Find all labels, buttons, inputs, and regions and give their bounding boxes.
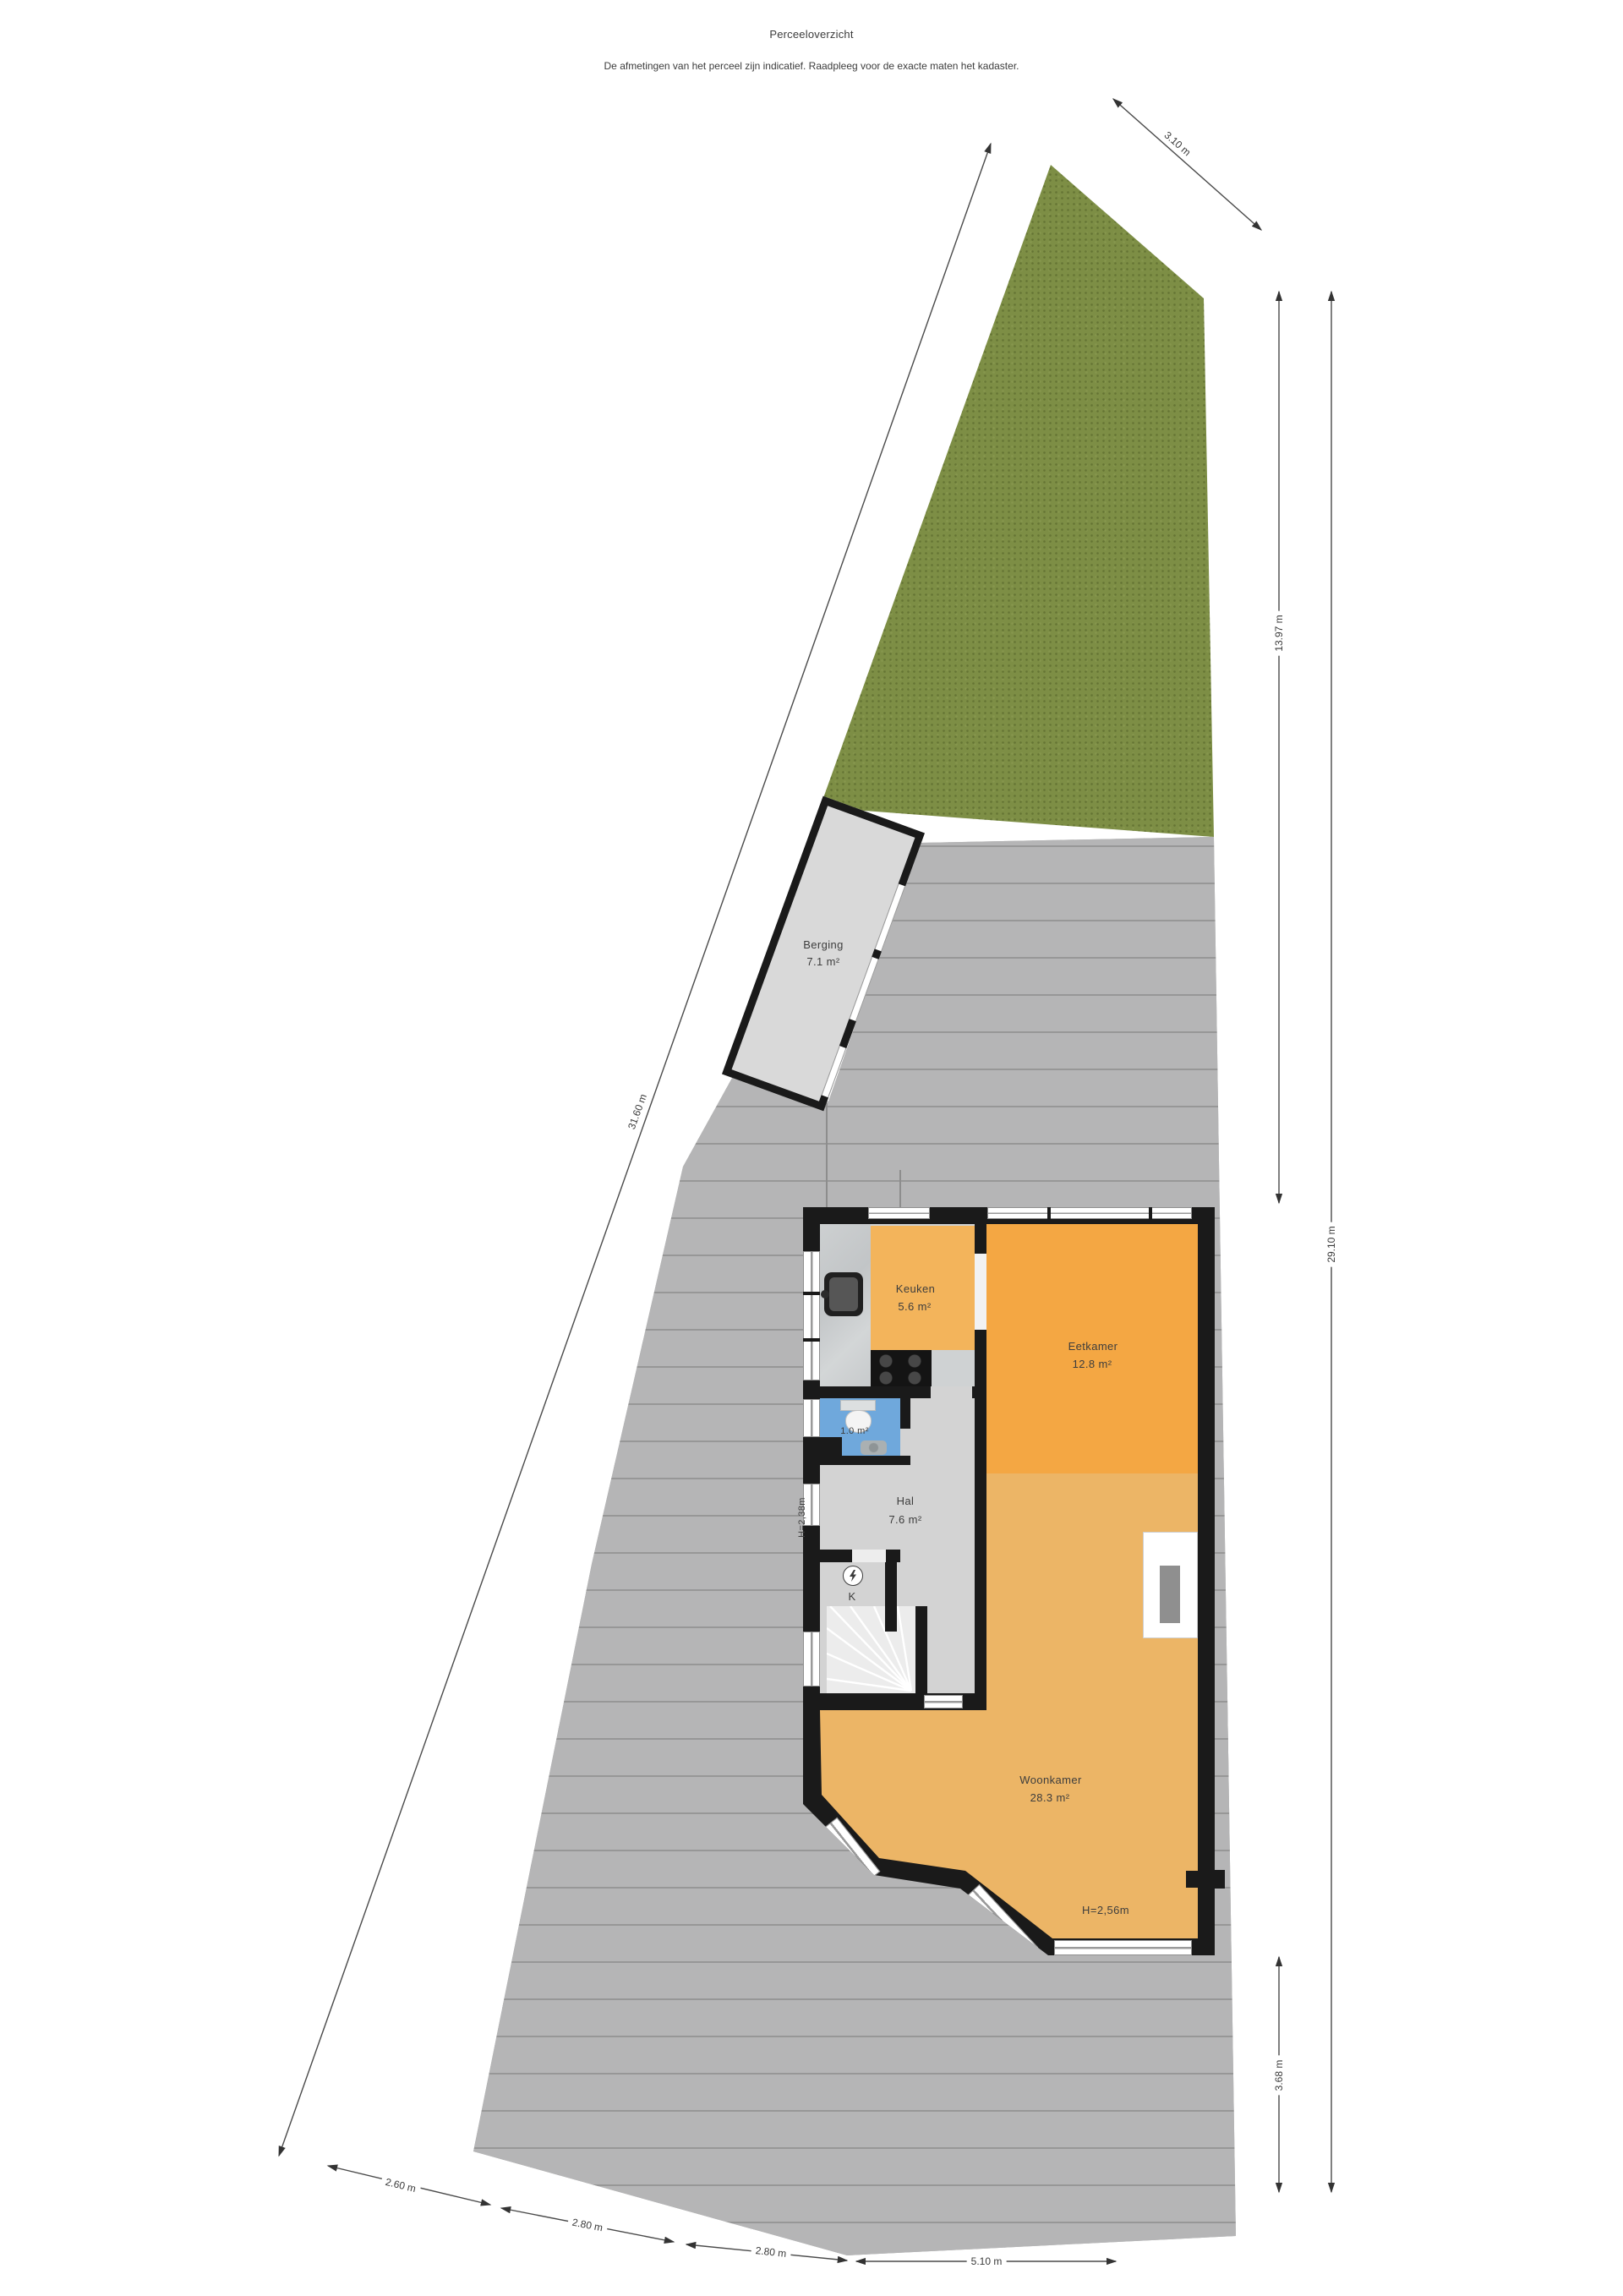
stairs-treads-icon — [827, 1606, 915, 1693]
wall-stub-eetkamer-woonkamer — [975, 1473, 986, 1522]
door-keuken-hal — [931, 1386, 972, 1398]
wall-meterkast-side — [885, 1562, 897, 1632]
meterkast-label: K — [848, 1588, 855, 1605]
woonkamer-label: Woonkamer — [1019, 1772, 1081, 1789]
berging-area: 7.1 m² — [806, 954, 839, 970]
window-keuken-top — [868, 1207, 930, 1219]
wall-toilet-bottom — [820, 1456, 910, 1465]
page-subtitle: De afmetingen van het perceel zijn indic… — [0, 60, 1623, 72]
kitchen-sink-icon — [824, 1272, 863, 1316]
staircase — [827, 1606, 915, 1693]
door-keuken-eetkamer — [975, 1254, 986, 1330]
stair-landing — [927, 1606, 975, 1693]
house-floorplan — [803, 1207, 1215, 1955]
dim-line-top — [1113, 99, 1261, 230]
dim-label-bottom-2: 2.80 m — [567, 2216, 609, 2235]
door-meterkast — [852, 1550, 886, 1562]
window-toilet — [803, 1399, 820, 1437]
paved-driveway-area — [0, 0, 1623, 2296]
page-title: Perceeloverzicht — [0, 28, 1623, 41]
terrace-divider-line — [899, 1170, 901, 1207]
dim-label-bottom-4: 5.10 m — [967, 2255, 1007, 2267]
hal-label: Hal — [897, 1493, 915, 1510]
dim-label-bottom-1: 2.60 m — [380, 2175, 422, 2196]
eetkamer-label: Eetkamer — [1068, 1338, 1118, 1355]
window-woonkamer-bottom — [1054, 1940, 1192, 1955]
dim-label-bottom-3: 2.80 m — [751, 2244, 791, 2260]
eetkamer-area: 12.8 m² — [1073, 1356, 1112, 1373]
toilet-basin-icon — [861, 1440, 887, 1455]
toilet-area: 1.0 m² — [840, 1423, 869, 1440]
stove-icon — [871, 1350, 932, 1388]
dim-label-right-lower: 3.68 m — [1273, 2056, 1285, 2096]
wall-nub-right — [1186, 1871, 1198, 1888]
electric-meter-icon — [843, 1566, 863, 1586]
wall-stub-left — [820, 1437, 842, 1456]
berging-label: Berging — [803, 937, 844, 954]
keuken-area: 5.6 m² — [898, 1298, 931, 1315]
window-eetkamer-top — [987, 1207, 1192, 1219]
fireplace-nook — [1143, 1532, 1198, 1638]
dim-label-right-upper: 13.97 m — [1273, 610, 1285, 655]
dim-label-top: 3.10 m — [1159, 126, 1196, 161]
hal-height-annotation: H=2,38m — [794, 1497, 811, 1538]
dim-label-left: 31.60 m — [624, 1089, 650, 1135]
window-hal-woonkamer — [924, 1695, 963, 1708]
woonkamer-area: 28.3 m² — [1030, 1790, 1070, 1807]
hal-area: 7.6 m² — [888, 1512, 921, 1528]
keuken-label: Keuken — [896, 1281, 936, 1298]
woonkamer-height-annotation: H=2,56m — [1082, 1902, 1129, 1919]
fireplace-icon — [1160, 1566, 1180, 1623]
window-mullion — [1149, 1207, 1152, 1219]
window-mullion — [1047, 1207, 1051, 1219]
wall-stairs — [915, 1606, 927, 1693]
window-mullion — [803, 1292, 820, 1295]
window-keuken-left — [803, 1251, 820, 1380]
window-stairs — [803, 1632, 820, 1686]
site-plan-canvas: Perceeloverzicht De afmetingen van het p… — [0, 0, 1623, 2296]
window-mullion — [803, 1338, 820, 1342]
wall-nub-exterior — [1215, 1870, 1225, 1889]
dim-label-right-full: 29.10 m — [1325, 1222, 1337, 1266]
fence-line — [826, 1103, 828, 1207]
